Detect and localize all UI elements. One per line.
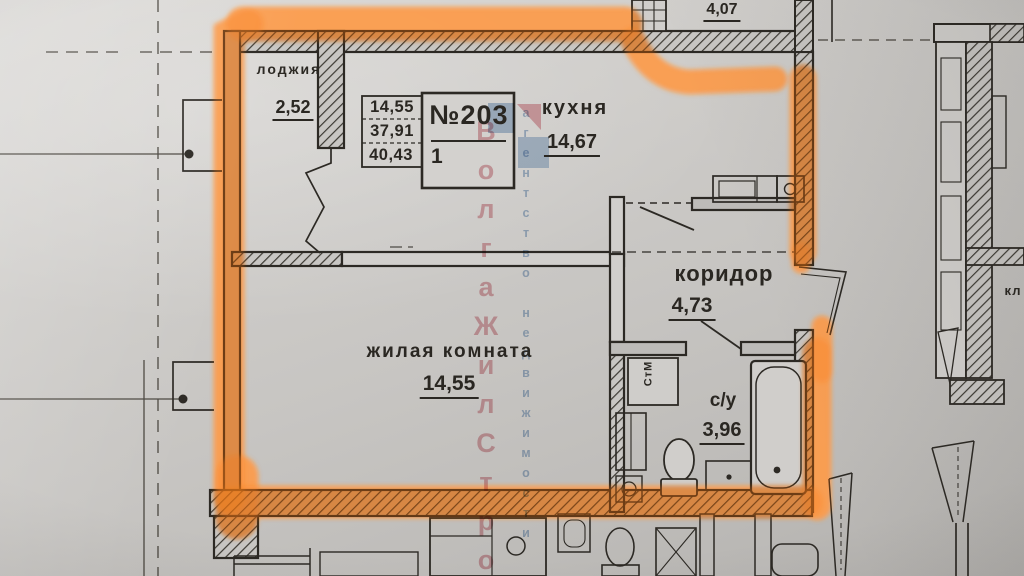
floorplan-drawing (0, 0, 1024, 576)
room-label-bathroom: с/у (710, 391, 736, 410)
room-area-loggia: 2,52 (272, 97, 313, 121)
bathroom-door-leaf (701, 321, 741, 349)
washing-machine-label: СтМ (644, 361, 655, 387)
right-neighbor (829, 24, 1024, 576)
room-label-loggia: лоджия (257, 62, 322, 76)
unit-rooms-count: 1 (431, 146, 443, 167)
floor-plan-photo: ВолгаЖилСтрой агентство недвижимости лод… (0, 0, 1024, 576)
agency-logo-triangle-icon (517, 104, 541, 130)
room-area-corridor: 4,73 (669, 294, 716, 321)
room-label-kitchen: кухня (542, 98, 608, 118)
loggia-glazing (306, 148, 331, 253)
room-label-corridor: коридор (675, 263, 774, 285)
room-area-living: 14,55 (420, 372, 479, 399)
room-area-kitchen: 14,67 (544, 131, 600, 157)
room-label-living: жилая комната (367, 342, 534, 361)
toilet (664, 439, 694, 481)
right-room-label: кл (1005, 284, 1022, 297)
bathtub (751, 361, 806, 494)
bottom-neighbor (234, 514, 818, 576)
kitchen-door-leaf (640, 207, 694, 230)
room-area-bathroom: 3,96 (700, 419, 745, 445)
area-table-row-2: 37,91 (370, 123, 414, 140)
unit-number: №203 (429, 102, 508, 129)
area-table-row-3: 40,43 (369, 147, 413, 164)
upper-room-area: 4,07 (703, 1, 740, 22)
area-table-row-1: 14,55 (370, 99, 414, 116)
